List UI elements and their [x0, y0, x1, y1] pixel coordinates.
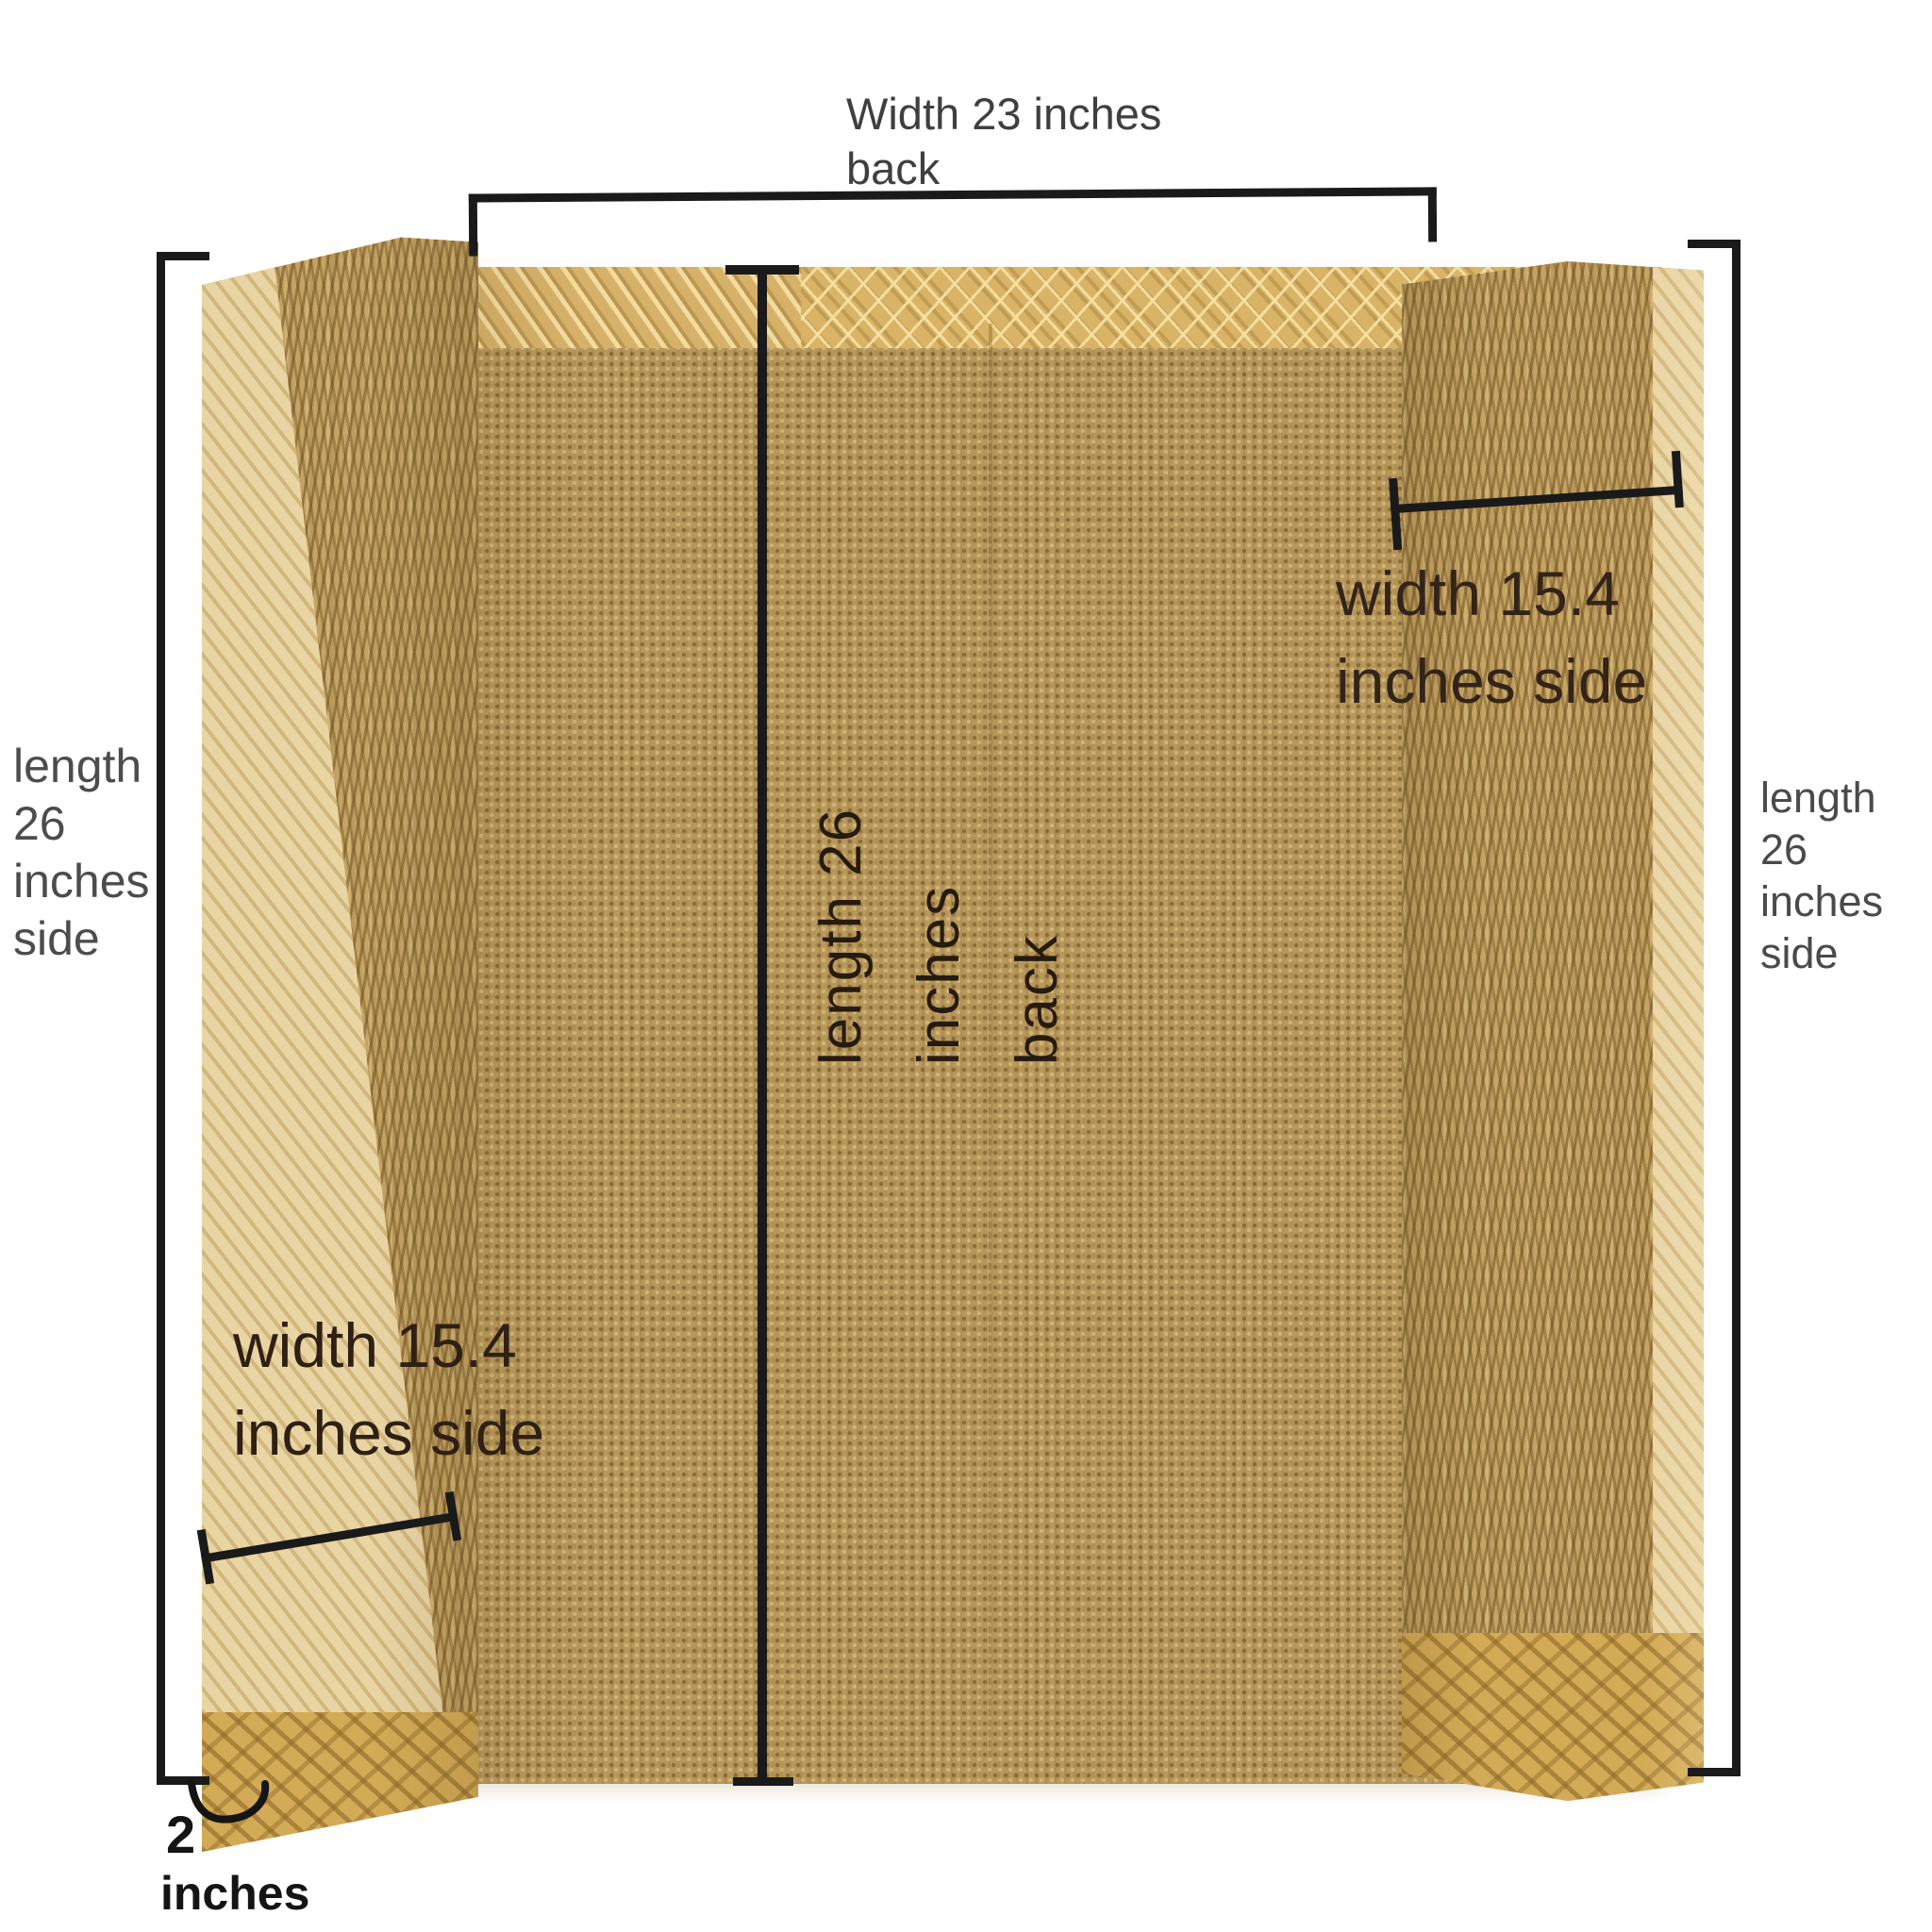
dimension-line-back-length: [725, 265, 799, 1786]
label-line: inches side: [1336, 638, 1647, 725]
label-line: width 15.4: [1336, 550, 1647, 638]
dimension-tick: [725, 265, 799, 275]
label-line: inches: [13, 853, 150, 910]
label-thickness-unit: inches: [160, 1866, 309, 1921]
label-right-side-length: length 26 inches side: [1760, 772, 1883, 979]
label-back-length-rotated: length 26 inches back: [792, 748, 1087, 1065]
label-left-side-length: length 26 inches side: [13, 738, 150, 968]
label-line: back: [989, 748, 1087, 1065]
dimension-tick: [157, 252, 209, 260]
label-thickness-value: 2: [166, 1804, 195, 1865]
label-line: 26: [13, 795, 150, 853]
dimension-tick: [1688, 1768, 1740, 1776]
dimension-line-right-length: [1688, 240, 1740, 1776]
left-side-panel: [202, 235, 478, 1852]
dimension-bar: [758, 265, 767, 1786]
label-upper-right-width: width 15.4 inches side: [1336, 550, 1647, 725]
label-line: inches: [891, 748, 989, 1065]
dimension-tick: [733, 1777, 793, 1786]
dimension-tick: [1688, 240, 1740, 248]
left-panel-shading: [202, 235, 478, 1852]
label-line: length: [1760, 772, 1883, 824]
dimension-bar: [1391, 486, 1683, 514]
dimension-bar: [201, 1512, 458, 1563]
label-line: length 26: [792, 748, 891, 1065]
dimension-tick: [1428, 187, 1437, 241]
label-line: inches side: [233, 1390, 544, 1477]
label-line: 26: [1760, 824, 1883, 875]
dimension-line-back-width: [469, 187, 1437, 256]
label-line: back: [846, 142, 1161, 196]
dimension-bar: [1732, 240, 1740, 1776]
label-line: side: [13, 910, 150, 968]
dimension-tick: [469, 194, 477, 257]
label-line: Width 23 inches: [846, 87, 1161, 142]
label-line: length: [13, 738, 150, 795]
label-line: width 15.4: [233, 1302, 544, 1390]
label-back-width: Width 23 inches back: [846, 87, 1161, 196]
label-line: side: [1760, 927, 1883, 979]
label-lower-left-width: width 15.4 inches side: [233, 1302, 544, 1477]
dimension-bar: [157, 252, 165, 1785]
thickness-brace-icon: [185, 1777, 275, 1830]
label-line: inches: [1760, 875, 1883, 927]
